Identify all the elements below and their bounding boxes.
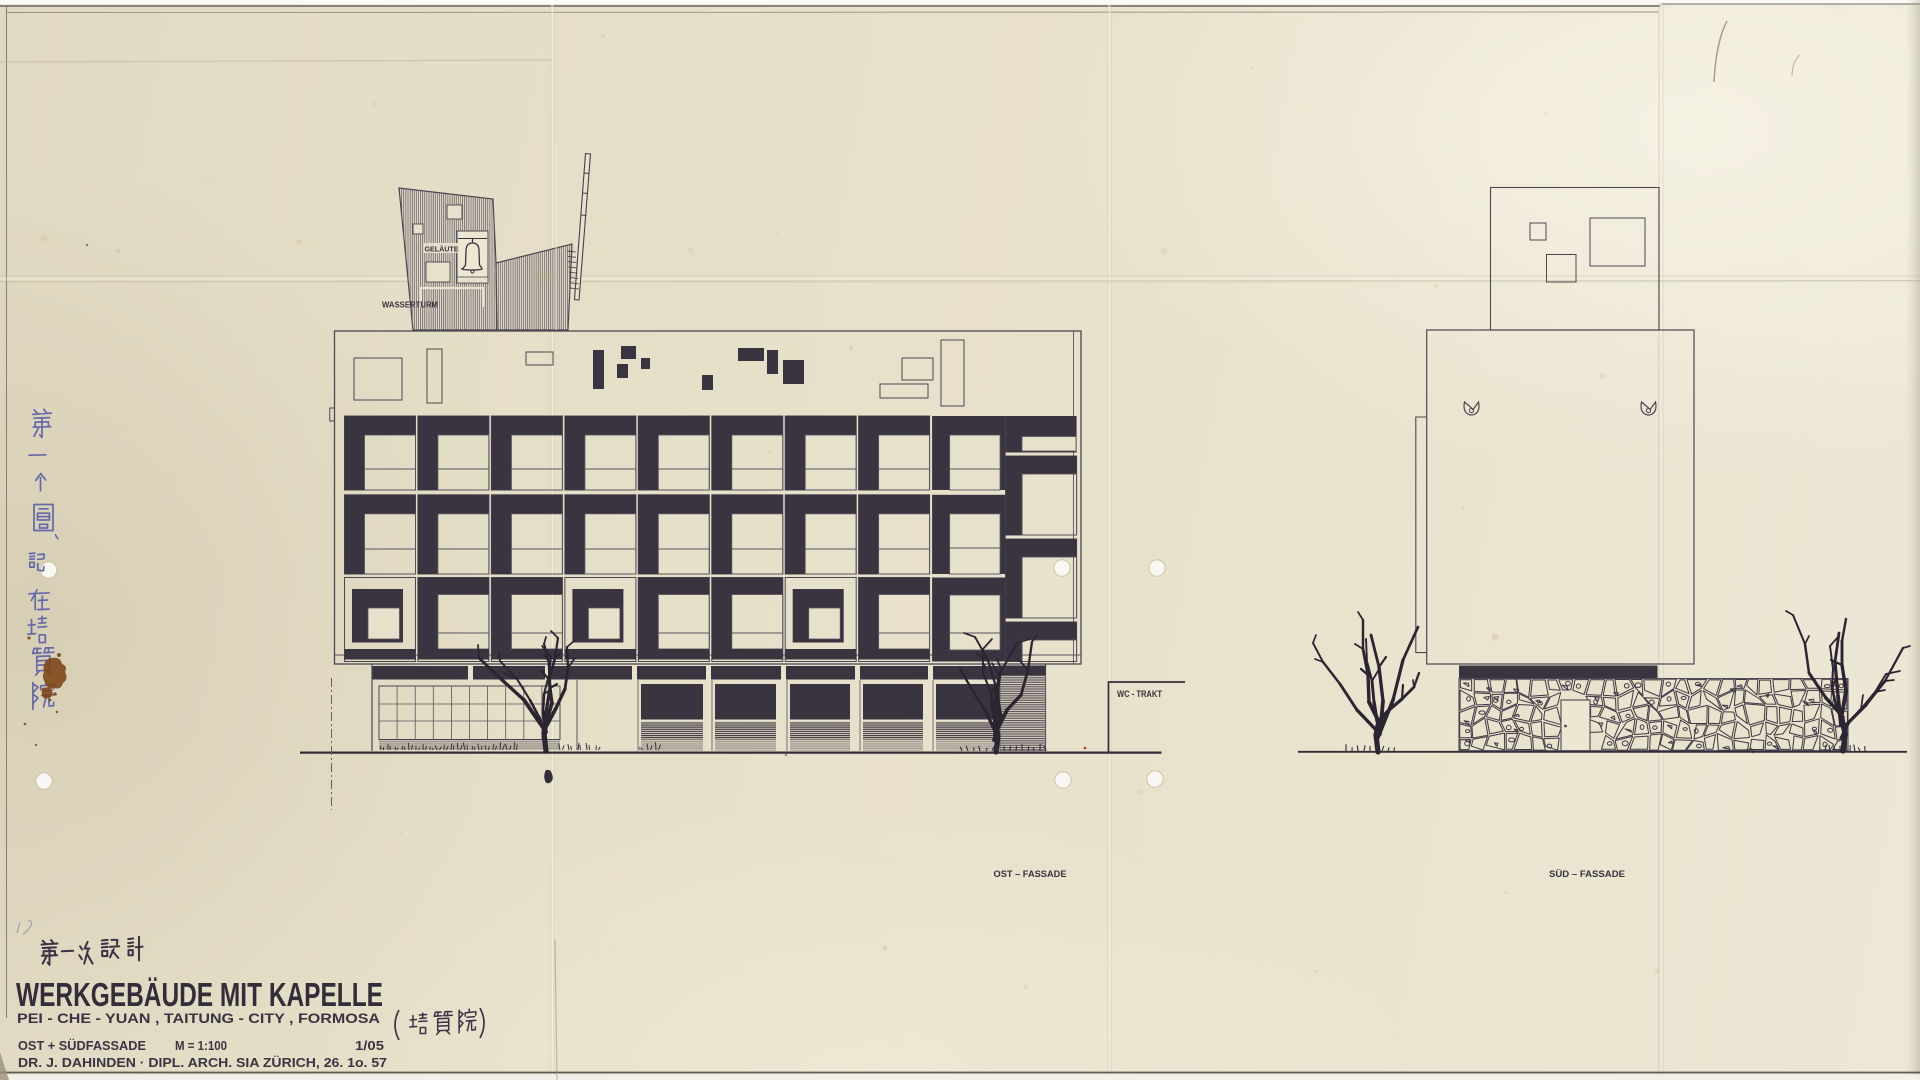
svg-text:GELÄUTE: GELÄUTE <box>425 245 459 254</box>
svg-text:M = 1:100: M = 1:100 <box>175 1038 227 1053</box>
svg-text:SÜD – FASSADE: SÜD – FASSADE <box>1549 869 1625 880</box>
svg-text:1/05: 1/05 <box>355 1038 384 1053</box>
svg-text:DR. J. DAHINDEN · DIPL.: DR. J. DAHINDEN · DIPL. ARCH. SIA ZÜRICH… <box>18 1055 387 1070</box>
svg-text:WASSERTURM: WASSERTURM <box>382 301 438 310</box>
svg-text:WC - TRAKT: WC - TRAKT <box>1117 689 1162 699</box>
svg-text:PEI - CHE - YUAN , TAITU: PEI - CHE - YUAN , TAITUNG - CITY , FORM… <box>17 1011 380 1026</box>
svg-text:OST + SÜDFASSADE: OST + SÜDFASSADE <box>18 1038 146 1053</box>
svg-text:OST – FASSADE: OST – FASSADE <box>994 869 1067 880</box>
svg-text:WERKGEBÄUDE MIT KAPELLE: WERKGEBÄUDE MIT KAPELLE <box>16 976 383 1013</box>
